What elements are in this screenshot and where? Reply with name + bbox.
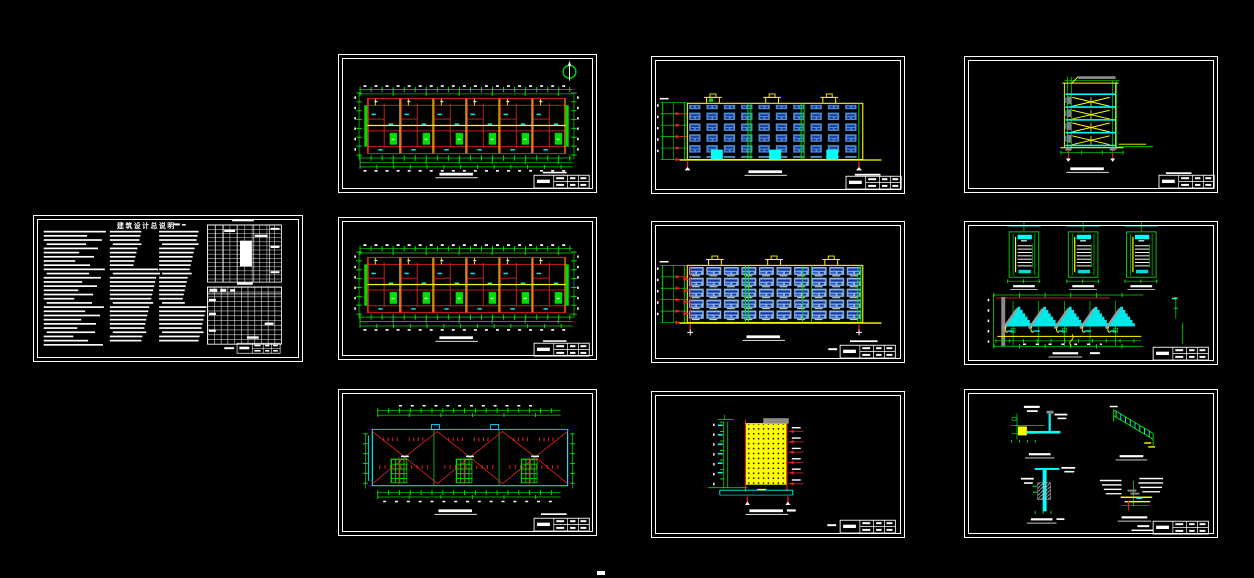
drawing-title-label	[744, 170, 786, 175]
front-elevation-drawing	[652, 57, 904, 193]
stair-plan-2	[1066, 222, 1100, 290]
notes-upper-table	[207, 219, 281, 282]
sheet-floor-plan-1[interactable]	[338, 54, 597, 193]
title-block	[1159, 175, 1214, 188]
rear-elevation-drawing	[652, 222, 904, 362]
stair-details-drawing	[965, 222, 1217, 364]
stair-plan-3	[1125, 222, 1159, 290]
cad-model-space-canvas[interactable]: 建筑设计总说明	[0, 0, 1254, 578]
drawing-title-label	[435, 173, 477, 178]
level-arrows	[789, 427, 804, 485]
notes-lower-table	[207, 283, 281, 345]
general-notes-drawing: 建筑设计总说明	[34, 216, 302, 361]
dimension-ladder	[658, 98, 689, 161]
sheet-construction-details[interactable]	[964, 389, 1218, 538]
notes-text-columns	[44, 231, 207, 346]
title-block	[534, 518, 589, 531]
construction-details-drawing	[965, 390, 1217, 537]
title-block	[846, 176, 901, 189]
notes-title-block	[237, 343, 280, 353]
gable-wall	[745, 424, 786, 485]
sheet-front-elevation[interactable]	[651, 56, 905, 194]
screen-artifact	[597, 571, 605, 575]
drawing-title-label	[435, 336, 477, 341]
roof-vent	[704, 94, 722, 103]
detail-wall-section	[1021, 467, 1075, 524]
stair-bulkhead	[391, 457, 407, 485]
roof-vent	[706, 256, 724, 265]
drawing-title-label	[743, 335, 785, 340]
title-block	[840, 345, 895, 358]
parapet	[763, 418, 789, 423]
title-block	[840, 520, 895, 533]
stair-plan-1	[1007, 222, 1041, 290]
notes-title: 建筑设计总说明	[117, 221, 176, 230]
entrance-door	[711, 150, 723, 160]
drawing-title-label	[1066, 167, 1108, 172]
sheet-stair-details[interactable]	[964, 221, 1218, 365]
floors-and-stairs	[1065, 93, 1116, 146]
title-block	[534, 343, 589, 356]
drawing-title-label	[434, 509, 476, 514]
sheet-rear-elevation[interactable]	[651, 221, 905, 363]
sheet-roof-plan[interactable]	[338, 389, 597, 536]
sheet-side-elevation[interactable]	[651, 391, 905, 538]
roof-plan-drawing	[339, 390, 596, 535]
floor-plan-1-drawing	[339, 55, 596, 192]
roof-slab	[1078, 76, 1115, 79]
north-arrow	[563, 61, 576, 81]
sheet-general-notes[interactable]: 建筑设计总说明	[33, 215, 303, 362]
title-block	[1153, 347, 1208, 360]
drawing-title-label	[745, 509, 787, 514]
side-elevation-drawing	[652, 392, 904, 537]
detail-stair-railing	[1110, 406, 1155, 461]
building-section-drawing	[965, 57, 1217, 192]
title-block	[534, 175, 589, 188]
sheet-floor-plan-2[interactable]	[338, 217, 597, 360]
detail-gutter	[1100, 478, 1163, 522]
title-block	[1153, 521, 1208, 534]
floor-plan-2-drawing	[339, 218, 596, 359]
detail-eave	[1011, 406, 1067, 459]
sheet-building-section[interactable]	[964, 56, 1218, 193]
balcony-window-grid	[689, 267, 862, 322]
stair-section	[988, 295, 1143, 346]
